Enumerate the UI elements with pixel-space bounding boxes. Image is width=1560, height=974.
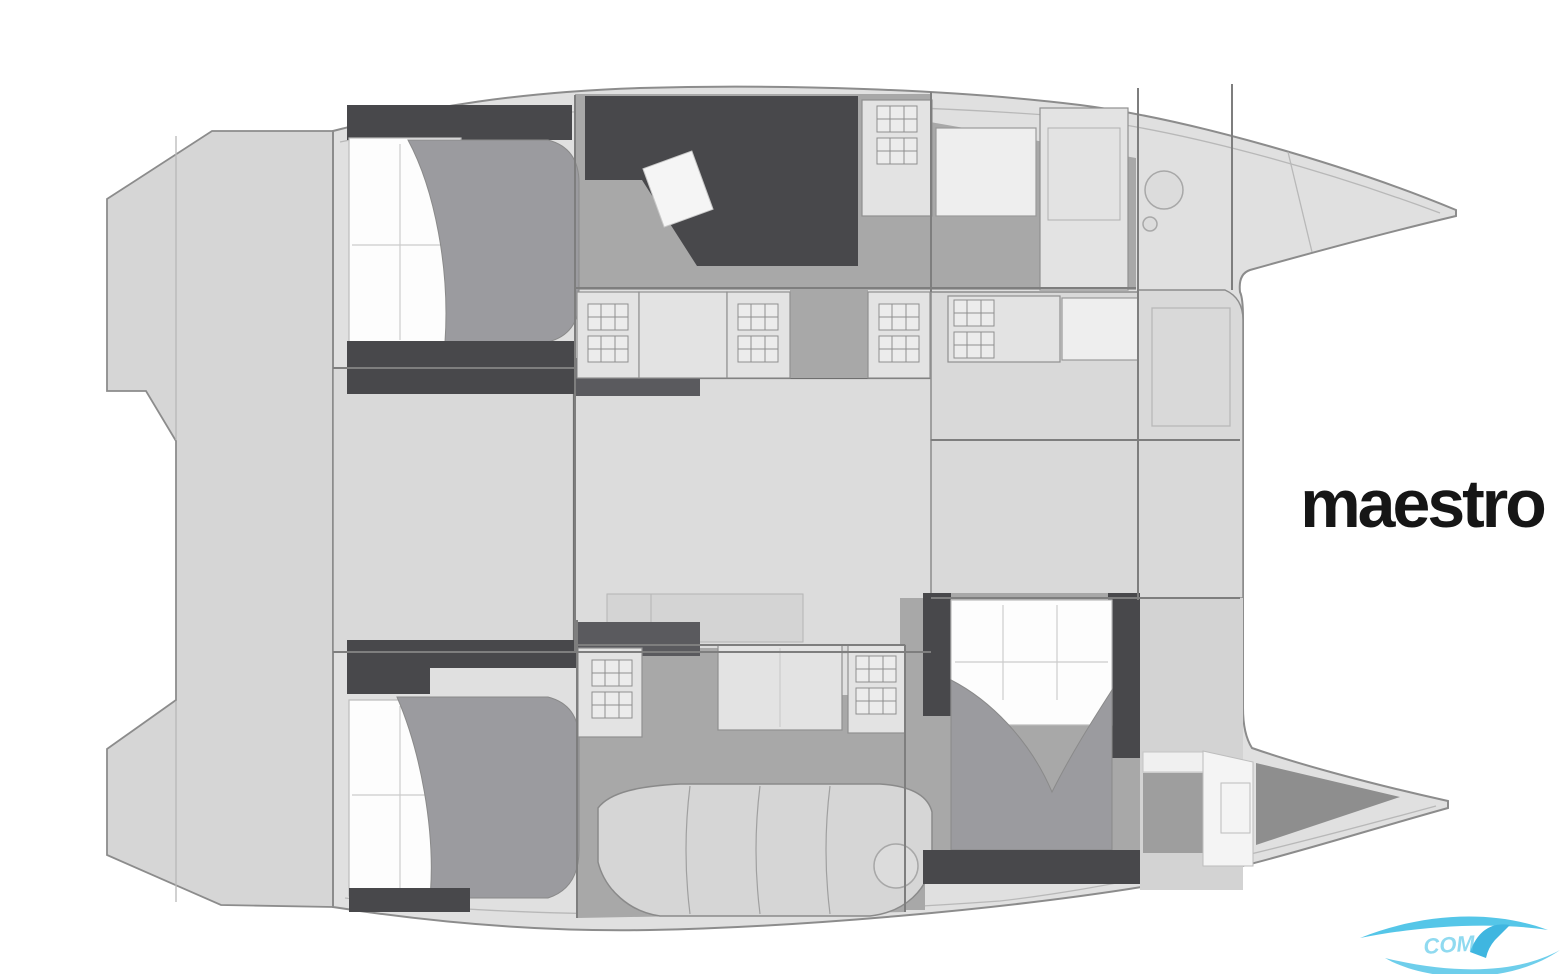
sink-basin bbox=[1145, 171, 1183, 209]
bathroom-step bbox=[1143, 752, 1203, 772]
foredeck-panel-fwd bbox=[931, 440, 1138, 598]
lower-cabinet-row bbox=[578, 645, 905, 737]
layout-title: maestro bbox=[1300, 466, 1544, 542]
boat-layout-page: maestro COM bbox=[0, 0, 1560, 974]
shower-pan bbox=[1203, 751, 1253, 866]
cabin-wall bbox=[923, 593, 951, 716]
round-table bbox=[874, 844, 918, 888]
cabin-wall bbox=[923, 850, 1140, 884]
galley-floor-gap bbox=[790, 290, 868, 378]
cabin-wall bbox=[1108, 593, 1140, 758]
shower-floor bbox=[1143, 773, 1203, 853]
stern-platforms bbox=[107, 131, 333, 907]
watermark-text: COM bbox=[1423, 930, 1477, 959]
counter-white bbox=[936, 128, 1036, 216]
foredeck-side-panel bbox=[1138, 290, 1243, 598]
nav-cabinet bbox=[1040, 108, 1128, 290]
aft-cockpit bbox=[333, 368, 574, 652]
sink-drain bbox=[1143, 217, 1157, 231]
lower-floor-gap bbox=[642, 648, 718, 737]
cabin-wall bbox=[347, 105, 572, 140]
cabin-wall bbox=[349, 888, 470, 912]
bathroom-owner bbox=[1140, 598, 1253, 890]
fin-icon bbox=[1470, 924, 1510, 958]
lounge-bench bbox=[598, 784, 932, 916]
catamaran-floorplan: maestro COM bbox=[0, 0, 1560, 974]
watermark-logo: COM bbox=[1360, 917, 1560, 974]
